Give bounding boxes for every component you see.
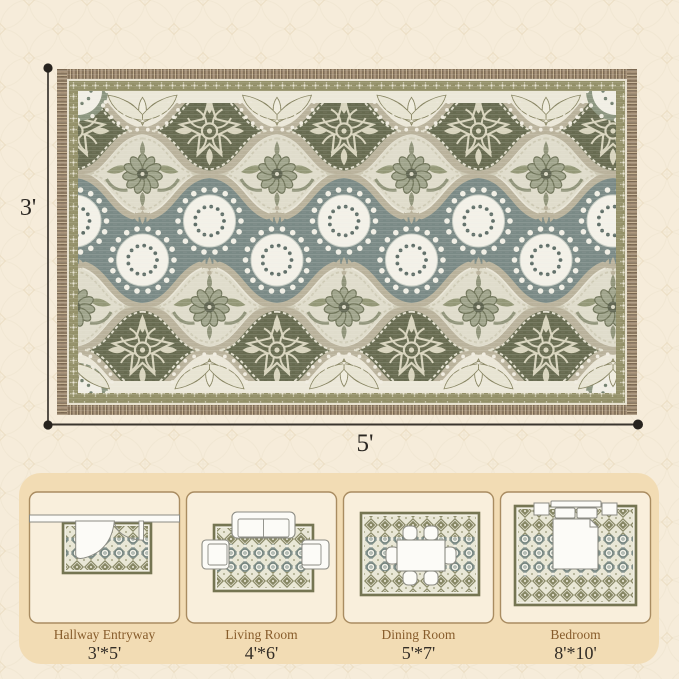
svg-text:Hallway Entryway: Hallway Entryway: [54, 627, 156, 642]
svg-text:3': 3': [20, 195, 36, 221]
svg-text:Bedroom: Bedroom: [550, 627, 601, 642]
svg-text:Dining Room: Dining Room: [382, 627, 456, 642]
svg-text:8'*10': 8'*10': [554, 643, 597, 663]
svg-text:4'*6': 4'*6': [245, 643, 279, 663]
svg-text:3'*5': 3'*5': [88, 643, 122, 663]
svg-text:5': 5': [356, 430, 373, 457]
svg-text:Living Room: Living Room: [225, 627, 298, 642]
svg-text:5'*7': 5'*7': [402, 643, 436, 663]
